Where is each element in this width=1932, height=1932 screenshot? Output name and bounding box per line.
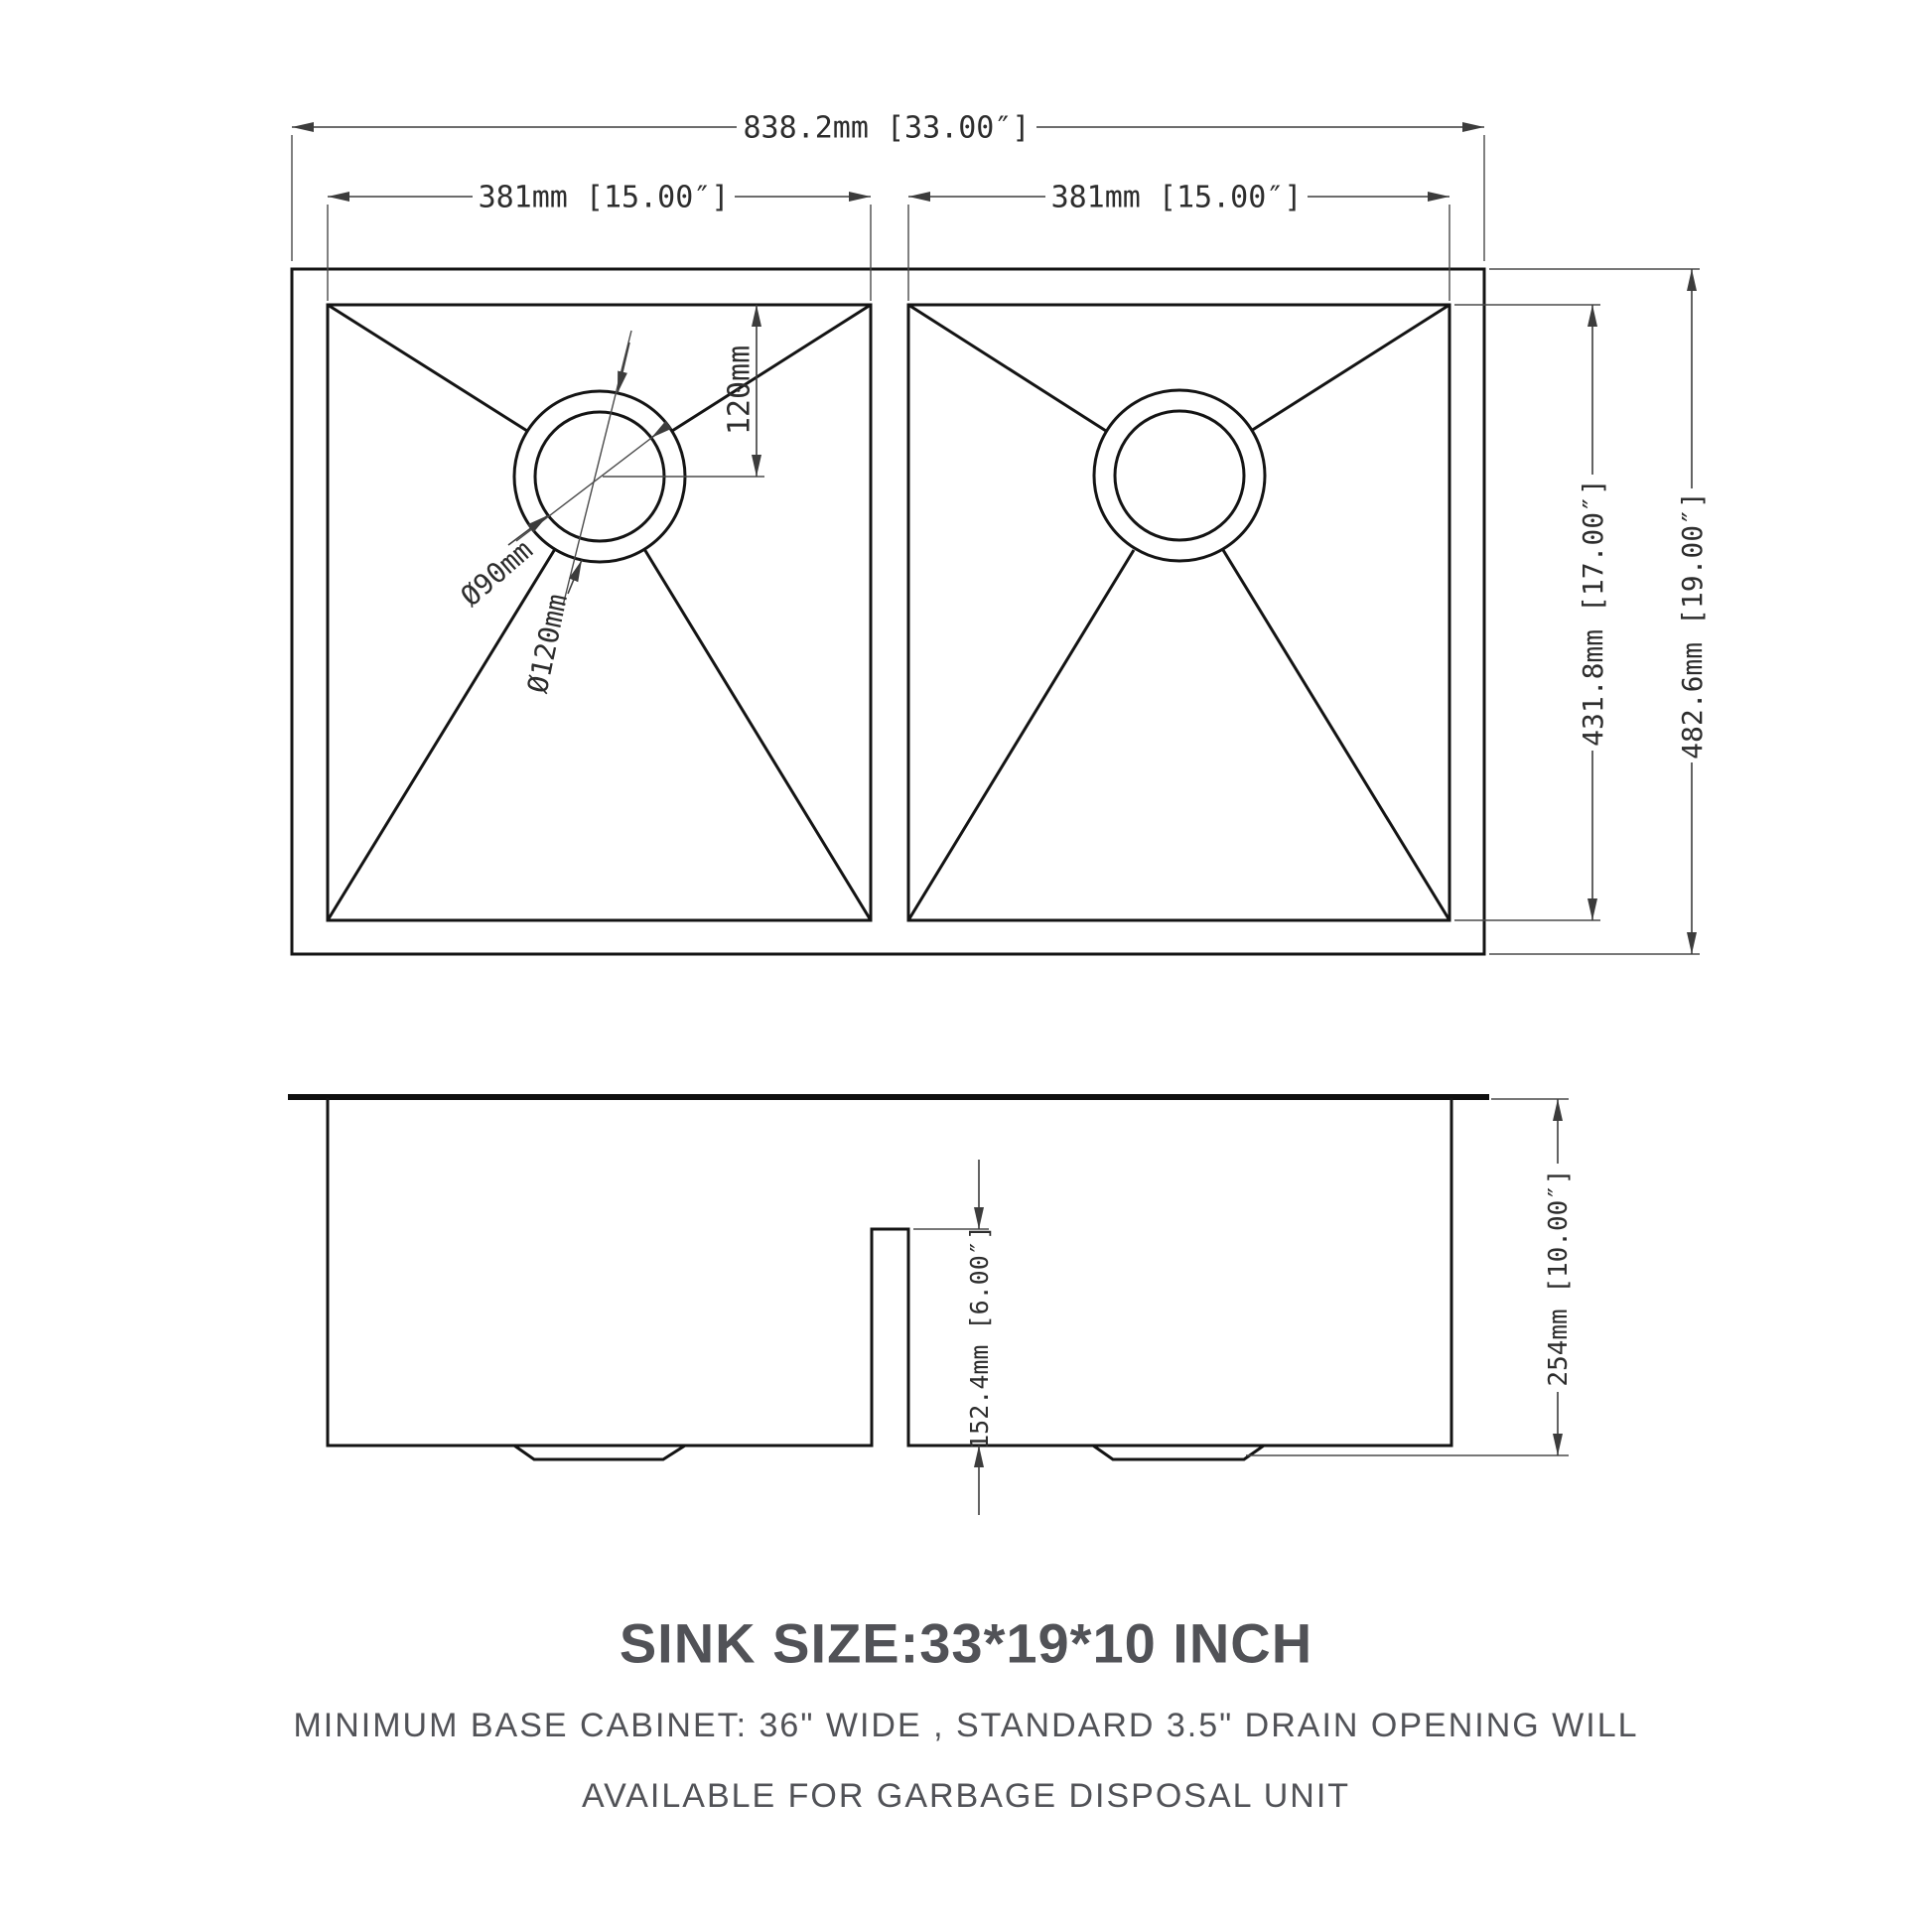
dim-overall-width-label: 838.2mm [33.00″]	[744, 111, 1031, 146]
caption-line2: AVAILABLE FOR GARBAGE DISPOSAL UNIT	[582, 1777, 1350, 1815]
caption-title: SINK SIZE:33*19*10 INCH	[620, 1612, 1312, 1675]
dim-left-bowl-width-label: 381mm [15.00″]	[479, 181, 730, 215]
caption-line1: MINIMUM BASE CABINET: 36" WIDE , STANDAR…	[293, 1707, 1638, 1744]
dim-drain-offset-label: 120mm	[723, 345, 758, 435]
sink-spec-sheet: 838.2mm [33.00″] 381mm [15.00″] 381mm [1…	[0, 0, 1932, 1932]
sink-technical-drawing: 838.2mm [33.00″] 381mm [15.00″] 381mm [1…	[0, 0, 1932, 1932]
dim-divider-height-label: 152.4mm [6.00″]	[965, 1225, 994, 1449]
dim-overall-height-label: 254mm [10.00″]	[1544, 1169, 1574, 1386]
dim-overall-depth-label: 482.6mm [19.00″]	[1676, 491, 1709, 759]
dim-right-bowl-width-label: 381mm [15.00″]	[1051, 181, 1303, 215]
dim-bowl-depth-label: 431.8mm [17.00″]	[1577, 479, 1609, 747]
